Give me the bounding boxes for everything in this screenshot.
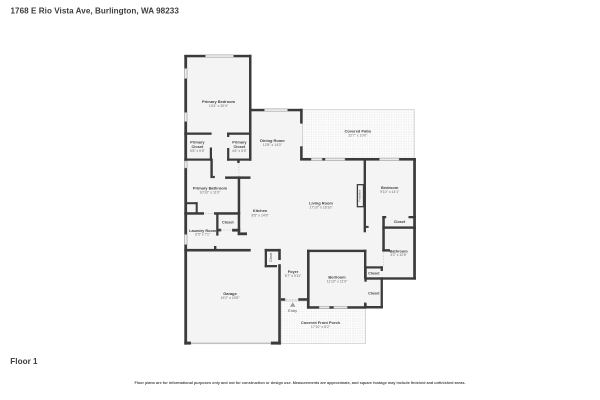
svg-text:Closet: Closet bbox=[394, 220, 406, 224]
svg-text:17'10" x 16'10": 17'10" x 16'10" bbox=[309, 205, 333, 209]
svg-text:Closet: Closet bbox=[368, 272, 380, 276]
svg-text:1768 E Rio Vista Ave, Burlingt: 1768 E Rio Vista Ave, Burlington, WA 982… bbox=[11, 7, 180, 16]
svg-text:17'10" x 8'2": 17'10" x 8'2" bbox=[311, 325, 331, 329]
svg-text:Closet: Closet bbox=[269, 253, 273, 262]
svg-text:9'10" x 14'1": 9'10" x 14'1" bbox=[380, 190, 400, 194]
svg-text:5'7" x 9'11": 5'7" x 9'11" bbox=[285, 274, 302, 278]
svg-text:Floor plans are for informatio: Floor plans are for informational purpos… bbox=[134, 381, 465, 385]
svg-text:8'5" x 14'9": 8'5" x 14'9" bbox=[251, 213, 269, 217]
svg-text:11'10" x 11'9": 11'10" x 11'9" bbox=[327, 280, 348, 284]
svg-text:4'6" x 5'5": 4'6" x 5'5" bbox=[232, 149, 248, 153]
svg-text:4'2" x 10'5": 4'2" x 10'5" bbox=[390, 253, 408, 257]
svg-text:Entry: Entry bbox=[288, 309, 297, 313]
svg-text:6'5" x 7'1": 6'5" x 7'1" bbox=[195, 233, 211, 237]
svg-text:19'2" x 19'5": 19'2" x 19'5" bbox=[220, 296, 240, 300]
svg-text:5'8" x 5'5": 5'8" x 5'5" bbox=[190, 149, 206, 153]
svg-text:Primary: Primary bbox=[190, 140, 205, 144]
svg-text:Closet: Closet bbox=[368, 291, 380, 295]
svg-text:10'10" x 11'0": 10'10" x 11'0" bbox=[200, 191, 222, 195]
svg-text:12'8" x 14'0": 12'8" x 14'0" bbox=[263, 143, 283, 147]
svg-text:13'4" x 20'4": 13'4" x 20'4" bbox=[209, 104, 229, 108]
svg-text:Floor 1: Floor 1 bbox=[10, 357, 38, 366]
svg-text:22'7" x 10'0": 22'7" x 10'0" bbox=[348, 134, 368, 138]
svg-text:Primary: Primary bbox=[232, 140, 247, 144]
svg-text:Closet: Closet bbox=[222, 220, 234, 224]
svg-text:Fireplace: Fireplace bbox=[358, 189, 362, 201]
